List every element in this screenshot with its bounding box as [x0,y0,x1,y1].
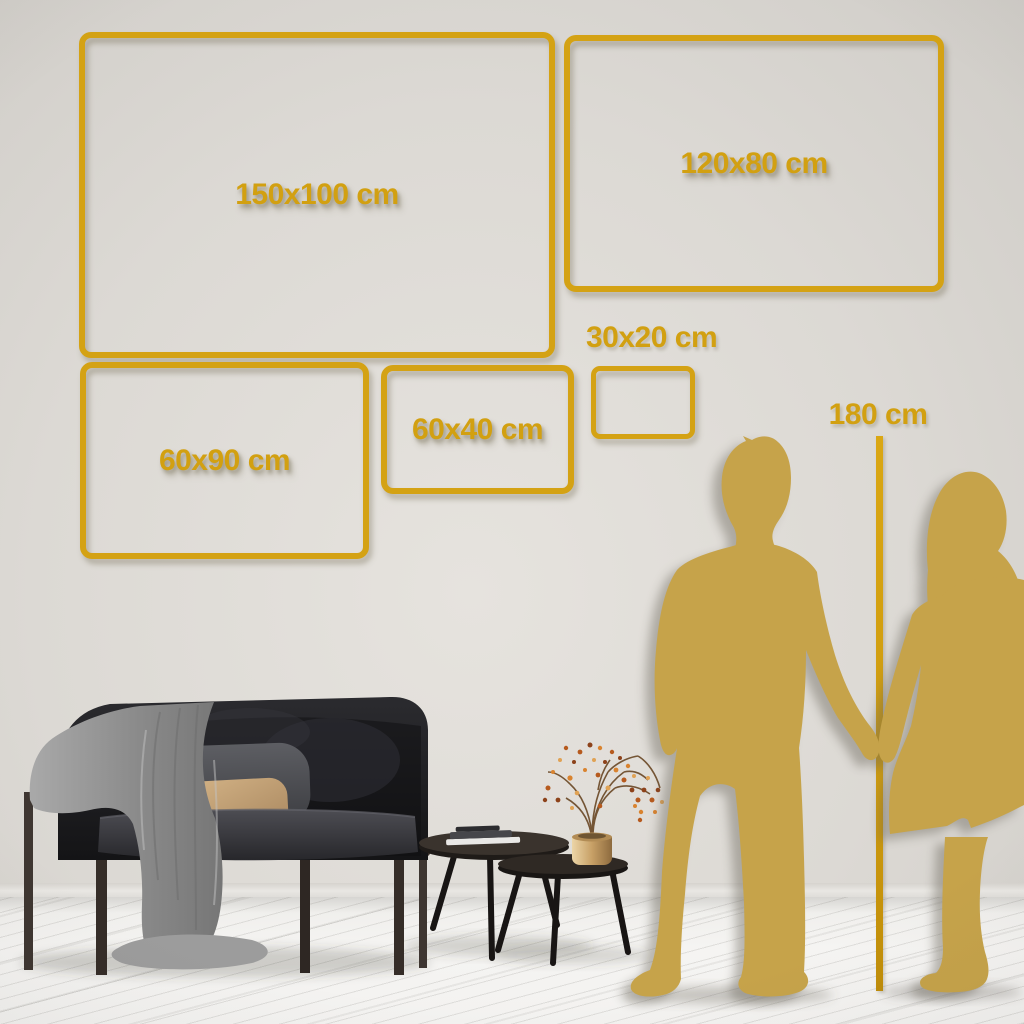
size-label-30x20: 30x20 cm [586,321,717,355]
size-label-60x90: 60x90 cm [159,444,290,478]
size-frame-60x40: 60x40 cm [381,365,574,494]
size-label-150x100: 150x100 cm [235,178,399,212]
baseboard [0,883,1024,898]
size-label-60x40: 60x40 cm [412,413,543,447]
size-frame-60x90: 60x90 cm [80,362,369,559]
size-frame-150x100: 150x100 cm [79,32,555,358]
height-reference-line [876,436,883,991]
height-reference-label: 180 cm [778,398,978,432]
size-frame-30x20 [591,366,695,439]
wood-floor [0,897,1024,1024]
size-label-120x80: 120x80 cm [680,147,827,181]
size-guide-scene: 150x100 cm 120x80 cm 60x90 cm 60x40 cm 3… [0,0,1024,1024]
size-frame-120x80: 120x80 cm [564,35,944,292]
